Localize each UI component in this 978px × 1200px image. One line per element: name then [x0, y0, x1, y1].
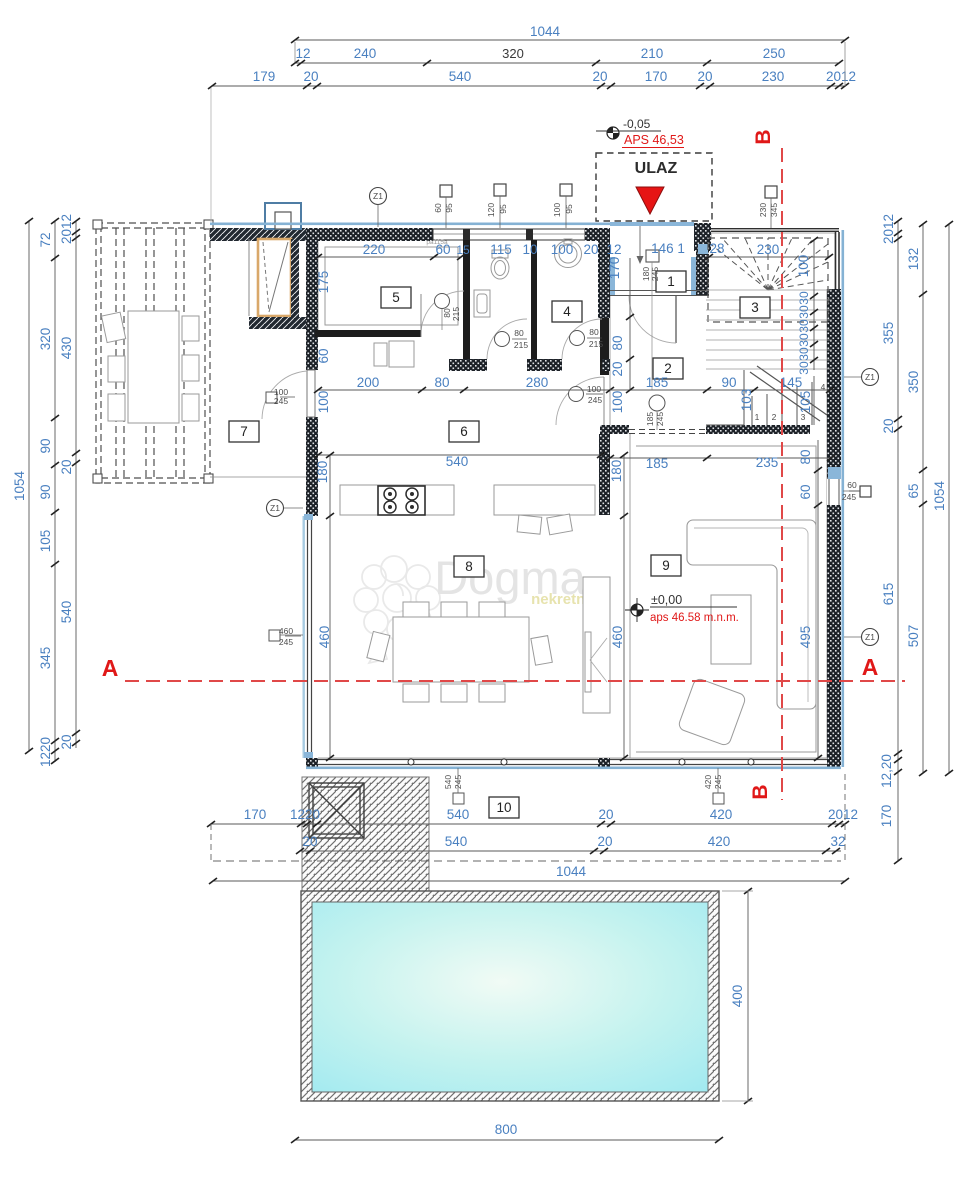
svg-text:Z1: Z1	[865, 632, 875, 642]
svg-text:185: 185	[646, 456, 669, 471]
svg-text:230: 230	[758, 203, 768, 217]
svg-text:345: 345	[769, 203, 779, 217]
svg-text:aps 46.58 m.n.m.: aps 46.58 m.n.m.	[650, 612, 739, 624]
svg-text:100: 100	[551, 242, 574, 257]
svg-text:9: 9	[662, 558, 670, 573]
svg-text:20: 20	[610, 361, 625, 376]
svg-text:100: 100	[796, 255, 811, 278]
svg-text:145: 145	[780, 375, 803, 390]
svg-text:245: 245	[279, 637, 293, 647]
svg-text:30: 30	[797, 361, 811, 375]
svg-text:95: 95	[564, 204, 574, 214]
svg-text:200: 200	[357, 375, 380, 390]
svg-text:60: 60	[847, 480, 857, 490]
svg-text:245: 245	[655, 412, 665, 426]
svg-text:105: 105	[798, 391, 813, 414]
svg-text:615: 615	[881, 583, 896, 606]
svg-text:103: 103	[739, 389, 754, 412]
svg-text:507: 507	[906, 625, 921, 648]
svg-text:245: 245	[453, 775, 463, 789]
svg-text:Z1: Z1	[865, 372, 875, 382]
svg-text:420: 420	[710, 807, 733, 822]
svg-text:132: 132	[906, 248, 921, 271]
svg-text:540: 540	[446, 454, 469, 469]
svg-text:20: 20	[597, 834, 612, 849]
svg-text:179: 179	[253, 69, 276, 84]
svg-text:2012: 2012	[59, 214, 74, 244]
svg-text:2012: 2012	[828, 807, 858, 822]
svg-text:540: 540	[59, 601, 74, 624]
svg-text:345: 345	[38, 647, 53, 670]
svg-text:170: 170	[645, 69, 668, 84]
svg-text:120: 120	[486, 203, 496, 217]
svg-text:30: 30	[797, 347, 811, 361]
svg-text:8: 8	[465, 559, 473, 574]
svg-text:210: 210	[641, 46, 664, 61]
svg-text:495: 495	[798, 626, 813, 649]
svg-text:100: 100	[610, 391, 625, 414]
svg-text:170: 170	[607, 257, 622, 280]
svg-text:1054: 1054	[12, 470, 27, 501]
svg-text:20: 20	[592, 69, 607, 84]
svg-text:350: 350	[906, 371, 921, 394]
svg-text:30: 30	[797, 333, 811, 347]
svg-text:B: B	[749, 784, 772, 799]
svg-text:4: 4	[821, 382, 826, 392]
svg-text:20: 20	[59, 459, 74, 474]
svg-text:235: 235	[756, 455, 779, 470]
svg-text:540: 540	[445, 834, 468, 849]
svg-text:180: 180	[315, 461, 330, 484]
svg-text:215: 215	[514, 340, 528, 350]
svg-text:1054: 1054	[932, 480, 947, 511]
svg-text:60: 60	[798, 484, 813, 499]
svg-text:280: 280	[526, 375, 549, 390]
svg-text:A: A	[102, 655, 119, 681]
svg-text:540: 540	[449, 69, 472, 84]
svg-text:20: 20	[302, 834, 317, 849]
svg-text:32: 32	[830, 834, 845, 849]
svg-text:185: 185	[646, 375, 669, 390]
svg-text:90: 90	[721, 375, 736, 390]
svg-text:5: 5	[392, 290, 400, 305]
svg-text:80: 80	[514, 328, 524, 338]
svg-text:220: 220	[363, 242, 386, 257]
svg-text:215: 215	[451, 307, 461, 321]
svg-text:2012: 2012	[881, 214, 896, 244]
svg-text:20: 20	[881, 418, 896, 433]
svg-text:180: 180	[609, 460, 624, 483]
svg-text:APS 46,53: APS 46,53	[624, 133, 684, 147]
svg-text:80: 80	[589, 327, 599, 337]
svg-text:215: 215	[589, 339, 603, 349]
svg-text:420: 420	[708, 834, 731, 849]
svg-text:Z1: Z1	[373, 191, 383, 201]
svg-text:30: 30	[797, 319, 811, 333]
svg-text:28: 28	[709, 241, 724, 256]
svg-text:80: 80	[434, 375, 449, 390]
svg-text:12,20: 12,20	[879, 754, 894, 788]
svg-text:2012: 2012	[826, 69, 856, 84]
svg-text:20: 20	[598, 807, 613, 822]
svg-text:90: 90	[38, 438, 53, 453]
svg-text:540: 540	[447, 807, 470, 822]
svg-text:20: 20	[59, 734, 74, 749]
svg-text:-0,05: -0,05	[623, 117, 651, 131]
svg-text:355: 355	[881, 322, 896, 345]
svg-text:12: 12	[606, 242, 621, 257]
svg-text:460: 460	[610, 626, 625, 649]
svg-text:245: 245	[842, 492, 856, 502]
svg-text:95: 95	[444, 203, 454, 213]
svg-text:10: 10	[522, 242, 537, 257]
svg-text:1044: 1044	[556, 864, 587, 879]
svg-text:100: 100	[552, 203, 562, 217]
svg-text:230: 230	[762, 69, 785, 84]
svg-text:170: 170	[879, 805, 894, 828]
svg-text:±0,00: ±0,00	[651, 593, 682, 607]
svg-text:320: 320	[502, 46, 524, 61]
svg-text:20: 20	[583, 242, 598, 257]
svg-text:1: 1	[667, 274, 675, 289]
svg-text:100: 100	[587, 384, 601, 394]
svg-text:420: 420	[703, 775, 713, 789]
svg-text:400: 400	[730, 985, 745, 1008]
svg-text:146 1: 146 1	[651, 241, 685, 256]
svg-text:230: 230	[757, 242, 780, 257]
svg-text:115: 115	[490, 242, 512, 257]
svg-text:250: 250	[763, 46, 786, 61]
svg-text:175: 175	[316, 271, 331, 294]
svg-text:A: A	[862, 654, 879, 680]
svg-text:ULAZ: ULAZ	[635, 160, 678, 177]
svg-text:12: 12	[295, 46, 310, 61]
svg-text:6: 6	[460, 424, 468, 439]
svg-text:Z1: Z1	[270, 503, 280, 513]
svg-text:245: 245	[588, 395, 602, 405]
svg-text:7: 7	[240, 424, 248, 439]
svg-text:185: 185	[645, 412, 655, 426]
svg-text:72: 72	[38, 232, 53, 247]
svg-text:460: 460	[279, 626, 293, 636]
svg-text:10: 10	[496, 800, 511, 815]
svg-text:240: 240	[354, 46, 377, 61]
svg-text:245: 245	[274, 396, 288, 406]
svg-text:20: 20	[697, 69, 712, 84]
svg-text:170: 170	[244, 807, 267, 822]
svg-text:105: 105	[38, 530, 53, 553]
svg-text:540: 540	[443, 775, 453, 789]
svg-text:30: 30	[797, 305, 811, 319]
svg-text:60: 60	[433, 203, 443, 213]
svg-text:65: 65	[906, 483, 921, 498]
svg-text:1: 1	[755, 412, 760, 422]
svg-text:1044: 1044	[530, 24, 561, 39]
svg-text:2: 2	[772, 412, 777, 422]
svg-text:80: 80	[610, 335, 625, 350]
svg-text:245: 245	[713, 775, 723, 789]
svg-text:4: 4	[563, 304, 571, 319]
svg-text:1220: 1220	[38, 737, 53, 767]
svg-text:1220: 1220	[290, 807, 320, 822]
svg-text:3: 3	[751, 300, 759, 315]
svg-text:90: 90	[38, 484, 53, 499]
svg-text:430: 430	[59, 337, 74, 360]
svg-text:30: 30	[797, 291, 811, 305]
svg-text:95: 95	[498, 204, 508, 214]
svg-text:B: B	[752, 129, 775, 144]
svg-text:320: 320	[38, 328, 53, 351]
svg-text:100: 100	[316, 391, 331, 414]
svg-text:20: 20	[303, 69, 318, 84]
svg-text:60: 60	[316, 348, 331, 363]
svg-text:800: 800	[495, 1122, 518, 1137]
svg-text:80: 80	[798, 449, 813, 464]
svg-text:245: 245	[650, 267, 660, 281]
svg-text:2: 2	[664, 361, 672, 376]
